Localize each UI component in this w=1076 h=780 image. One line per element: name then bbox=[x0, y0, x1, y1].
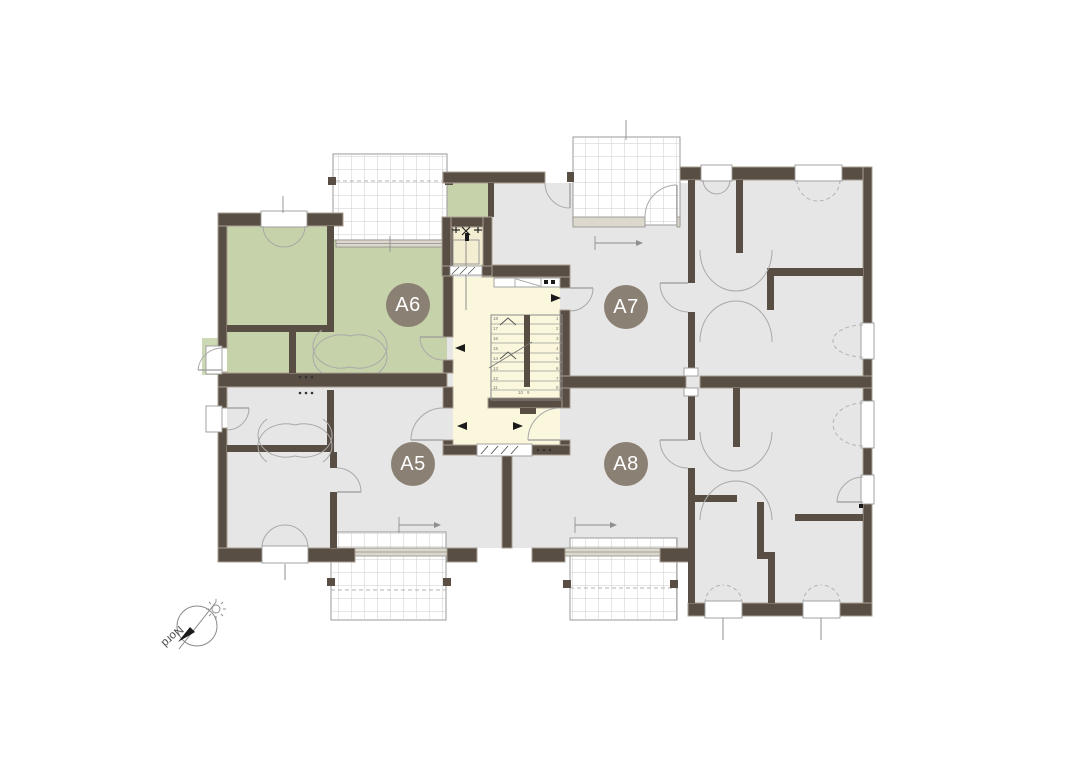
stairwell-area bbox=[453, 277, 560, 448]
party-wall-a6-a5 bbox=[218, 373, 447, 387]
floor-plan-page: A6 A7 A5 A8 Nord 1817161514131211 123456… bbox=[0, 0, 1076, 780]
stair-tread-number: 7 bbox=[556, 377, 559, 382]
floor-plan-drawing bbox=[0, 0, 1076, 780]
apartment-badge-a8[interactable]: A8 bbox=[604, 442, 648, 486]
stair-tread-number: 10 bbox=[518, 391, 523, 396]
stair-tread-number: 9 bbox=[527, 391, 530, 396]
terrace-a6 bbox=[328, 154, 453, 240]
stair-tread-number: 1 bbox=[556, 317, 559, 322]
terrace-a7 bbox=[567, 137, 680, 225]
stair-tread-number: 16 bbox=[493, 337, 498, 342]
stair-tread-numbers-bottom: 109 bbox=[518, 391, 530, 396]
stair-tread-number: 4 bbox=[556, 347, 559, 352]
sun-icon bbox=[206, 599, 226, 619]
stair-tread-numbers-left: 1817161514131211 bbox=[493, 317, 498, 391]
party-wall-a7-a8 bbox=[560, 376, 686, 388]
apartment-badge-a6[interactable]: A6 bbox=[386, 283, 430, 327]
stair-tread-number: 2 bbox=[556, 327, 559, 332]
stair-tread-number: 6 bbox=[556, 367, 559, 372]
stair-tread-number: 18 bbox=[493, 317, 498, 322]
wall-a5-a8-divider bbox=[502, 455, 512, 548]
stair-tread-number: 12 bbox=[493, 377, 498, 382]
stair-tread-number: 3 bbox=[556, 337, 559, 342]
stair-tread-number: 15 bbox=[493, 347, 498, 352]
stair-tread-number: 17 bbox=[493, 327, 498, 332]
stair-tread-number: 14 bbox=[493, 357, 498, 362]
apartment-badge-a7[interactable]: A7 bbox=[604, 285, 648, 329]
stair-tread-number: 5 bbox=[556, 357, 559, 362]
stair-tread-number: 8 bbox=[556, 386, 559, 391]
terrace-a5 bbox=[327, 532, 451, 620]
stair-tread-numbers-right: 12345678 bbox=[556, 317, 559, 391]
stair-tread-number: 13 bbox=[493, 367, 498, 372]
apartment-badge-a5[interactable]: A5 bbox=[391, 442, 435, 486]
stair-tread-number: 11 bbox=[493, 386, 498, 391]
